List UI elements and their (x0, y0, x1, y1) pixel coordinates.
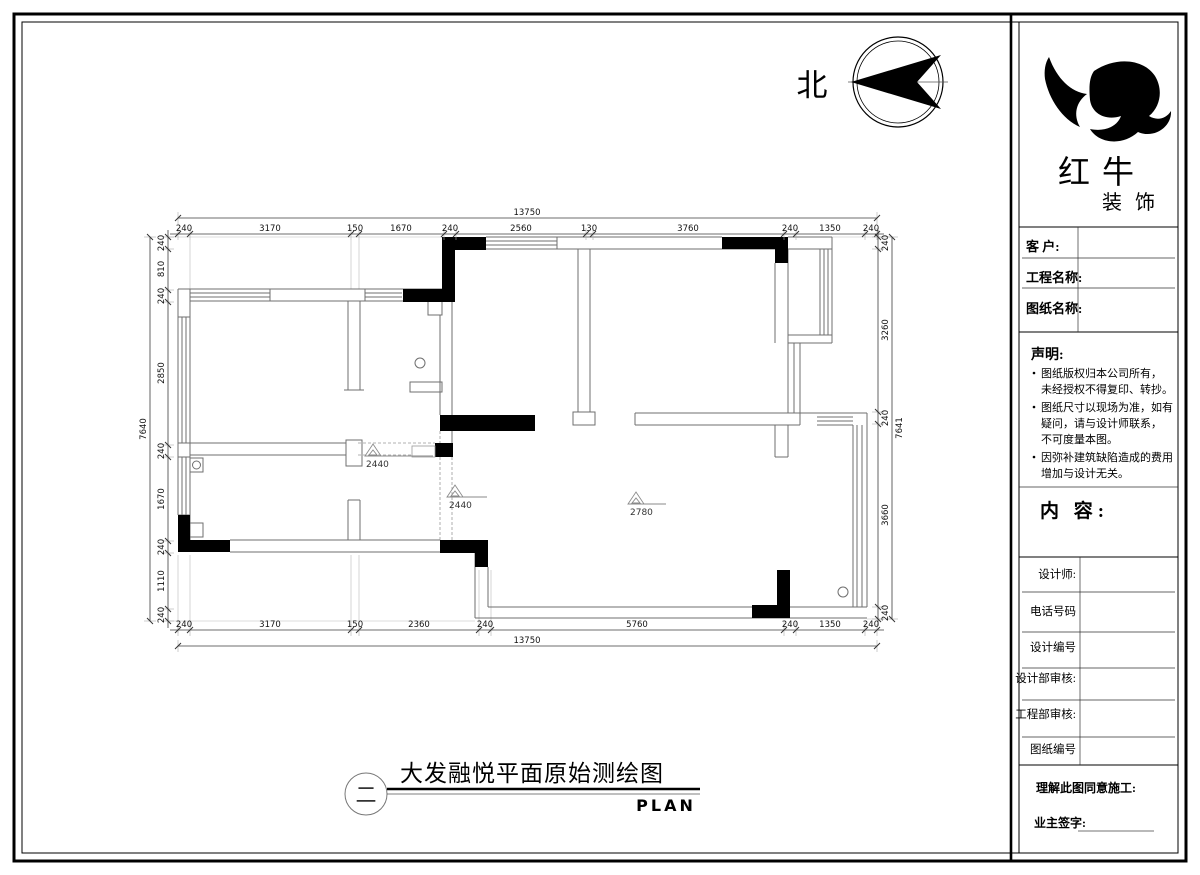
dim-label: 5760 (626, 620, 648, 630)
dim-label: 240 (176, 620, 192, 630)
owner-signature-label: 业主签字: (1034, 815, 1086, 830)
dim-label: 1110 (157, 570, 167, 592)
dim-label: 2850 (157, 362, 167, 384)
figure-number: 二 (356, 783, 377, 807)
drawing-sheet: 2440 2440 2780 13750 240 3170 150 1670 2… (0, 0, 1200, 875)
dim-label: 240 (863, 620, 879, 630)
row-label-design-no: 设计编号 (1030, 640, 1076, 654)
dim-label: 1670 (157, 488, 167, 510)
dim-label: 240 (157, 607, 167, 623)
statement-line: 疑问，请与设计师联系， (1041, 417, 1162, 430)
ceiling-height-label: 2780 (630, 508, 653, 518)
company-logo-icon (1045, 57, 1171, 141)
dim-label: 130 (581, 224, 597, 234)
dim-label: 240 (881, 410, 891, 426)
dim-label: 150 (347, 620, 363, 630)
content-label: 内 容: (1040, 499, 1109, 522)
door-leaf (412, 446, 435, 457)
row-label-eng-review: 工程部审核: (1015, 707, 1076, 721)
statement-line: 不可度量本图。 (1041, 432, 1118, 446)
pipe-symbol (415, 358, 425, 368)
dim-label: 1670 (390, 224, 412, 234)
dim-label: 240 (881, 605, 891, 621)
dim-label: 240 (863, 224, 879, 234)
dim-label: 240 (157, 443, 167, 459)
dim-label: 3170 (259, 620, 281, 630)
north-label: 北 (797, 68, 828, 103)
field-label-project: 工程名称: (1026, 270, 1082, 285)
dim-overall-right: 7641 (895, 417, 905, 439)
dim-overall-bottom: 13750 (513, 636, 540, 646)
statement-line: 未经授权不得复印、转抄。 (1041, 382, 1173, 396)
dim-label: 240 (176, 224, 192, 234)
statement-line: 图纸尺寸以现场为准，如有 (1041, 400, 1173, 414)
company-name: 红 牛 (1058, 154, 1136, 190)
dim-label: 240 (442, 224, 458, 234)
dim-label: 2560 (510, 224, 532, 234)
row-label-designer: 设计师: (1038, 568, 1076, 581)
dim-label: 240 (157, 235, 167, 251)
dim-label: 240 (157, 539, 167, 555)
statement-line: 因弥补建筑缺陷造成的费用 (1041, 450, 1173, 464)
north-arrow: 北 (797, 37, 949, 127)
field-label-client: 客 户: (1026, 239, 1060, 254)
drawing-title: 大发融悦平面原始测绘图 (400, 761, 664, 787)
dim-label: 3760 (677, 224, 699, 234)
sheet-title: 二 大发融悦平面原始测绘图 PLAN (345, 761, 700, 815)
dim-label: 3170 (259, 224, 281, 234)
drawing-subtitle: PLAN (636, 796, 696, 815)
ceiling-height-label: 2440 (366, 460, 389, 470)
company-subtitle: 装 饰 (1102, 191, 1159, 214)
dim-label: 2360 (408, 620, 430, 630)
dim-label: 240 (881, 235, 891, 251)
dim-label: 150 (347, 224, 363, 234)
statement-line: 增加与设计无关。 (1041, 466, 1129, 480)
dim-label: 3660 (881, 504, 891, 526)
construction-agreement-label: 理解此图同意施工: (1036, 780, 1136, 795)
dim-label: 810 (157, 261, 167, 277)
title-block: 红 牛 装 饰 客 户: 工程名称: 图纸名称: 声明: 图纸版权归本公司所有，… (1011, 15, 1178, 860)
statement-title: 声明: (1030, 346, 1064, 363)
row-label-phone: 电话号码 (1030, 605, 1076, 618)
dim-label: 240 (157, 288, 167, 304)
statement-line: 图纸版权归本公司所有， (1041, 366, 1162, 380)
floor-plan-drawing: 2440 2440 2780 13750 240 3170 150 1670 2… (0, 0, 1200, 875)
ceiling-height-label: 2440 (449, 501, 472, 511)
dim-label: 3260 (881, 319, 891, 341)
drain-symbol (190, 458, 203, 472)
dim-label: 240 (782, 224, 798, 234)
row-label-sheet-no: 图纸编号 (1030, 742, 1076, 756)
pipe-symbol (838, 587, 848, 597)
dim-label: 240 (782, 620, 798, 630)
dim-label: 240 (477, 620, 493, 630)
dim-overall-top: 13750 (513, 208, 540, 218)
dim-label: 1350 (819, 620, 841, 630)
ceiling-height-markers (365, 444, 666, 504)
field-label-drawing: 图纸名称: (1026, 301, 1082, 316)
row-label-design-review: 设计部审核: (1015, 671, 1076, 685)
dim-label: 1350 (819, 224, 841, 234)
dim-overall-left: 7640 (139, 418, 149, 440)
